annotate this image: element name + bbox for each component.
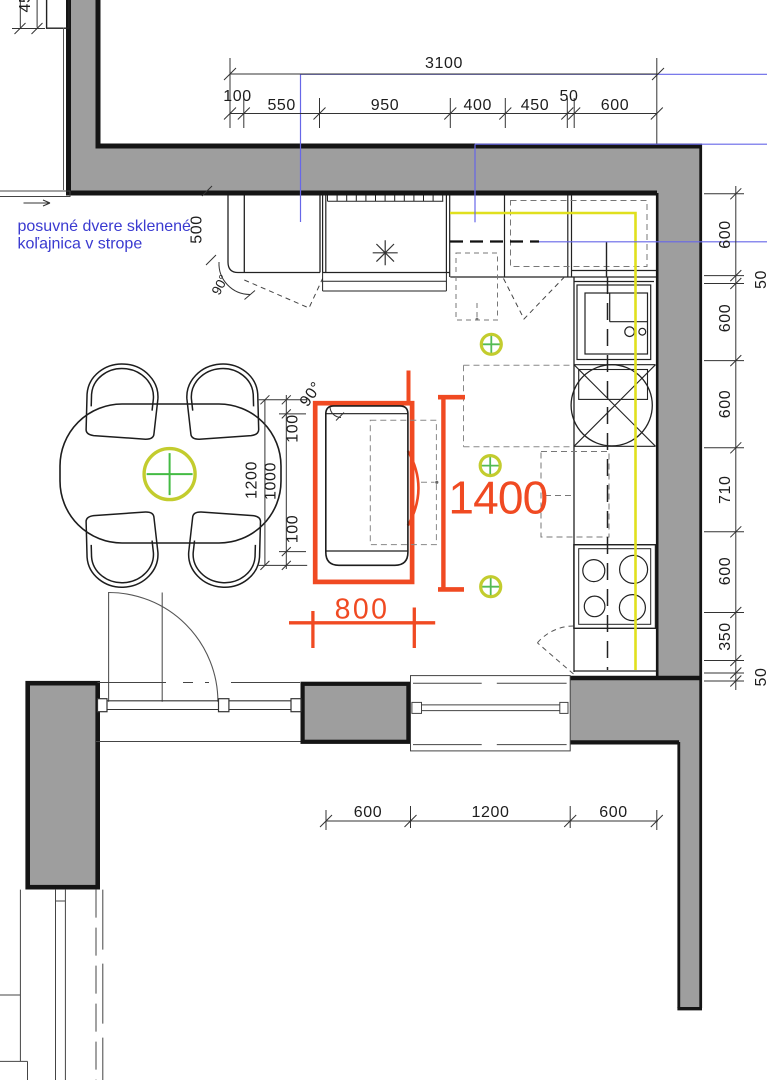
svg-text:600: 600 [601, 97, 630, 114]
svg-text:90°: 90° [209, 272, 232, 297]
svg-text:800: 800 [335, 594, 390, 626]
svg-text:1200: 1200 [243, 461, 260, 499]
svg-text:600: 600 [717, 304, 734, 333]
svg-text:600: 600 [717, 390, 734, 419]
svg-text:600: 600 [717, 557, 734, 586]
svg-text:posuvné dvere sklenené: posuvné dvere sklenené [18, 218, 192, 235]
svg-text:50: 50 [753, 270, 767, 289]
svg-text:500: 500 [189, 215, 206, 244]
svg-text:50: 50 [753, 668, 767, 687]
svg-text:50: 50 [560, 88, 579, 105]
svg-text:100: 100 [285, 414, 302, 443]
svg-text:550: 550 [267, 97, 296, 114]
svg-text:1400: 1400 [448, 472, 547, 524]
svg-text:3100: 3100 [425, 55, 463, 72]
svg-text:600: 600 [717, 220, 734, 249]
svg-text:100: 100 [285, 515, 302, 544]
svg-text:710: 710 [717, 476, 734, 505]
svg-text:600: 600 [599, 804, 628, 821]
svg-text:450: 450 [521, 97, 550, 114]
svg-text:350: 350 [717, 622, 734, 651]
svg-text:600: 600 [354, 804, 383, 821]
svg-text:koľajnica v strope: koľajnica v strope [18, 236, 143, 253]
svg-text:1200: 1200 [472, 804, 510, 821]
svg-text:100: 100 [223, 88, 252, 105]
svg-text:400: 400 [464, 97, 493, 114]
svg-text:1000: 1000 [263, 462, 280, 500]
svg-text:950: 950 [371, 97, 400, 114]
svg-text:45: 45 [17, 0, 34, 13]
